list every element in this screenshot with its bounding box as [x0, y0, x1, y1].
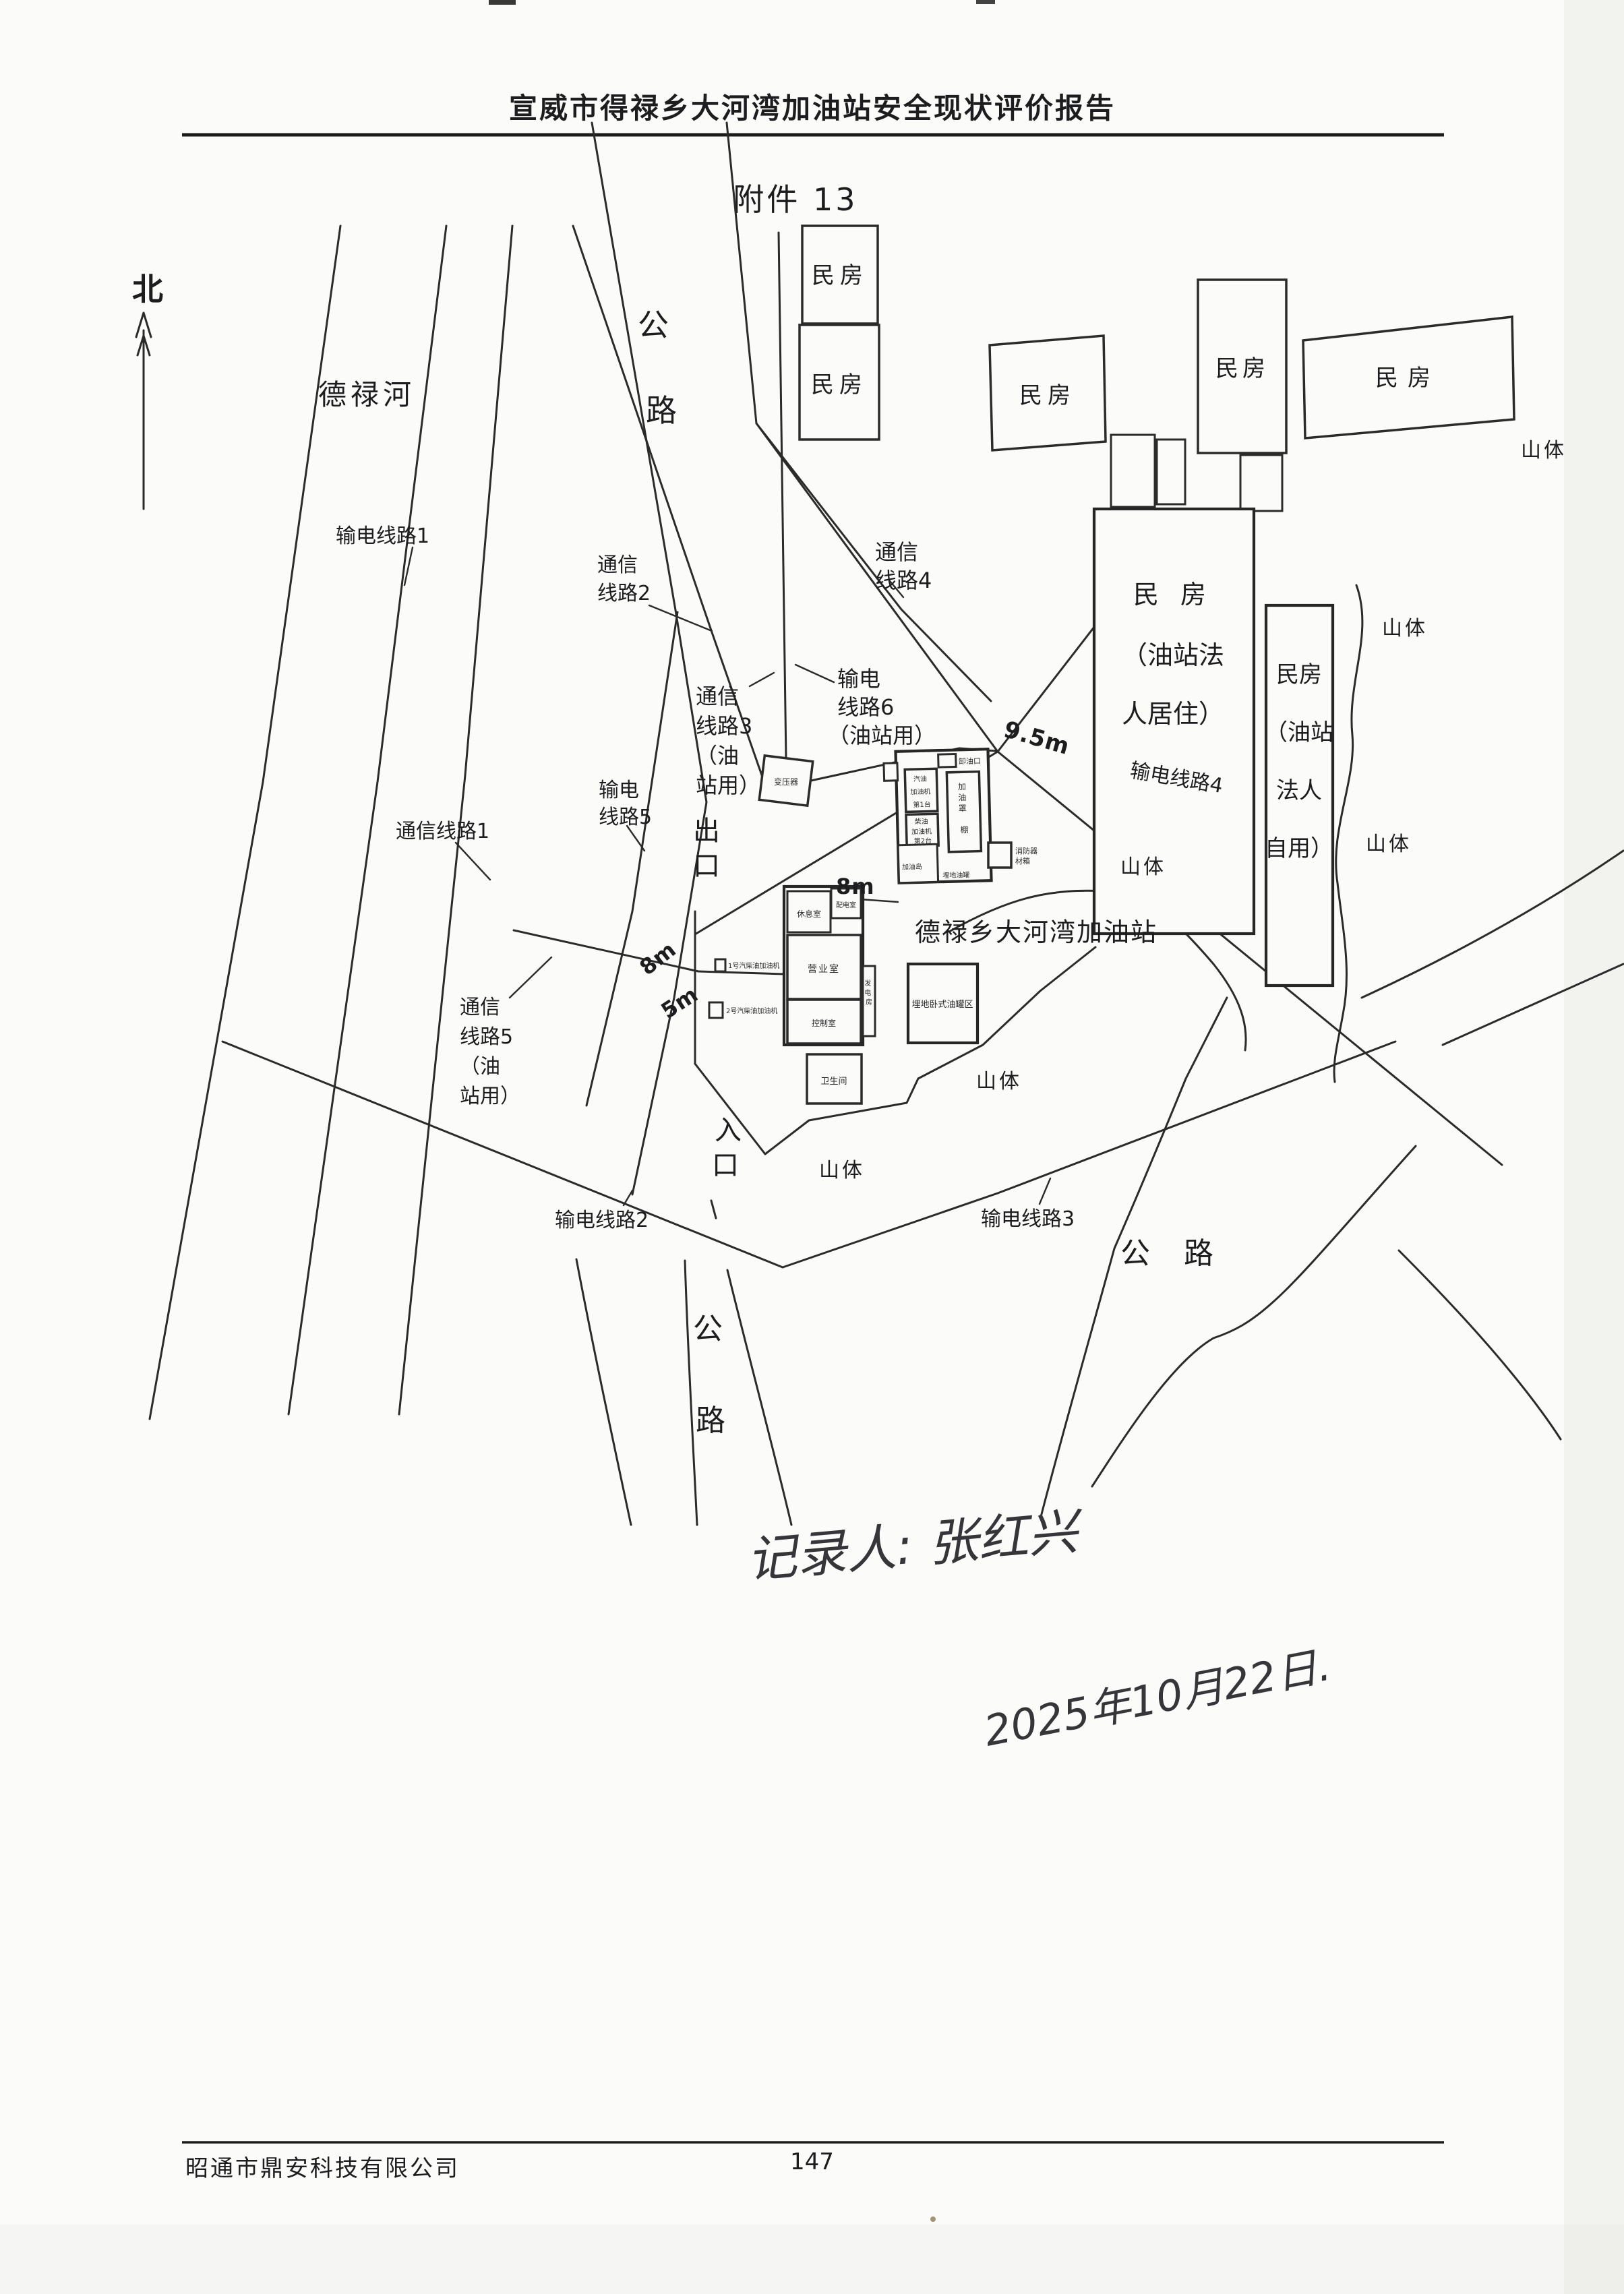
north-compass: 北	[132, 271, 163, 509]
rest-room-label: 休息室	[797, 909, 821, 919]
leader-telecom5	[510, 957, 551, 998]
canopy-island-vertical-label: 加 油 罩 棚	[958, 782, 970, 835]
handwritten-date: 2025年10月22日.	[980, 1641, 1335, 1756]
tank-area-label: 埋地卧式油罐区	[911, 1000, 973, 1010]
houses-group: 民房 民房 民房 民房 民房	[800, 226, 1514, 511]
fire-equipment-label: 消防器 材箱	[1015, 846, 1040, 866]
house-1-label: 民房	[812, 262, 868, 289]
small-outbuilding-1	[1111, 435, 1155, 507]
road-top-label: 公 路	[638, 307, 679, 429]
transformer-label: 变压器	[774, 777, 798, 787]
power-line-6-label: 输电 线路6 （油站用）	[828, 666, 936, 748]
telecom-line-1-label: 通信线路1	[396, 820, 489, 843]
dispenser-2-box	[709, 1002, 723, 1018]
road-top-west-edge	[592, 123, 706, 1195]
road-bottom-edge-2	[685, 1261, 697, 1525]
report-title: 宣威市得禄乡大河湾加油站安全现状评价报告	[509, 92, 1116, 125]
owner-private-line2: （油站	[1265, 719, 1333, 746]
dispenser-row-line	[698, 971, 784, 974]
owner-residence-line1: 民 房	[1133, 580, 1213, 609]
small-outbuilding-2	[1157, 440, 1185, 504]
handwritten-notes: 记录人: 张红兴 2025年10月22日.	[744, 1502, 1334, 1755]
footer-company: 昭通市鼎安科技有限公司	[185, 2155, 460, 2182]
telecom-line-4-path	[756, 423, 991, 701]
unloading-point-label: 卸油口	[959, 756, 981, 766]
house-2-label: 民房	[811, 371, 868, 398]
telecom-line-5-label: 通信 线路5 （油 站用）	[460, 996, 520, 1108]
house-5-label: 民房	[1375, 365, 1440, 392]
leader-telecom3	[750, 673, 774, 686]
island-label: 加油岛	[902, 862, 922, 872]
road-curve-bottom-right	[1399, 1250, 1561, 1439]
mountain-label-5: 山体	[819, 1159, 865, 1182]
scanned-report-page: 宣威市得禄乡大河湾加油站安全现状评价报告 附件 13 北	[0, 0, 1624, 2294]
toilet-label: 卫生间	[820, 1077, 847, 1087]
service-building-group: 休息室 配电室 营业室 控制室 发 电 房 卫生间	[784, 886, 875, 1104]
road-bottom-edge-3	[727, 1270, 791, 1525]
mountain-label-4: 山体	[976, 1070, 1022, 1093]
road-right-east-edge	[1092, 1146, 1416, 1486]
power-line-6-path	[779, 233, 786, 759]
scan-mark-top-2	[976, 0, 995, 4]
mountain-label-2: 山体	[1366, 833, 1412, 856]
owner-residence-line2: （油站法	[1122, 640, 1224, 670]
dispenser-1-label: 1号汽柴油加油机	[728, 961, 779, 970]
scan-bottom-shade	[0, 2225, 1624, 2294]
canopy-group: 卸油口 加 油 罩 棚 汽油 加油机 第1台 柴油 加油机 第2台 加油岛	[883, 749, 991, 883]
scan-mark-top-1	[489, 0, 516, 5]
road-top-east-edge	[727, 123, 756, 423]
dispenser-1-box	[715, 959, 725, 971]
attachment-heading: 附件 13	[733, 181, 858, 218]
owner-private-line1: 民房	[1276, 661, 1322, 688]
leader-power2	[624, 1190, 632, 1205]
buried-tank-label: 埋地油罐	[942, 870, 969, 880]
river-bank-west-line	[150, 226, 340, 1419]
control-room-label: 控制室	[812, 1018, 836, 1028]
fire-equipment-box	[988, 843, 1011, 868]
house-3-label: 民房	[1019, 382, 1076, 409]
river-label: 德禄河	[318, 378, 415, 411]
leader-telecom1	[456, 843, 490, 880]
mountain-label-3: 山体	[1120, 855, 1166, 879]
owner-private-line4: 自用）	[1265, 835, 1333, 862]
road-right-label: 公 路	[1120, 1236, 1226, 1271]
dim-8m-boundary-label: 8m	[635, 936, 682, 980]
station-name-label: 德禄乡大河湾加油站	[915, 917, 1157, 947]
mountain-label-1: 山体	[1382, 617, 1428, 640]
page-footer: 昭通市鼎安科技有限公司 147	[182, 2142, 1444, 2182]
power-line-5-label: 输电 线路5	[599, 779, 652, 829]
road-bottom-edge-1	[576, 1259, 631, 1525]
scan-edge-shade	[1564, 0, 1624, 2294]
handwritten-recorder: 记录人: 张红兴	[744, 1502, 1087, 1589]
generator-room-label: 发 电 房	[864, 979, 873, 1006]
owner-houses-group: 民 房 （油站法 人居住） 民房 （油站 法人 自用）	[1094, 509, 1333, 986]
mountain-edge-right-wavy	[1334, 585, 1362, 1082]
scan-speck	[930, 2216, 936, 2222]
business-room-label: 营业室	[808, 963, 840, 975]
north-label: 北	[132, 271, 163, 307]
telecom-line-4-label: 通信 线路4	[875, 539, 932, 593]
distribution-room-label: 配电室	[836, 901, 856, 909]
footer-page-number: 147	[790, 2148, 834, 2175]
leader-telecom2	[649, 605, 712, 631]
leader-power6	[795, 665, 834, 682]
owner-residence-line3: 人居住）	[1122, 699, 1224, 729]
owner-private-line3: 法人	[1276, 777, 1322, 804]
leader-power3	[1040, 1178, 1050, 1204]
power-line-5-path	[587, 612, 678, 1106]
road-bottom-label: 公 路	[693, 1312, 732, 1438]
entrance-gate-label: 入 口	[712, 1115, 750, 1181]
dim-9p5m-label: 9.5m	[1001, 716, 1073, 760]
dispenser-2-label: 2号汽柴油加油机	[726, 1006, 777, 1015]
canopy-west-notch	[884, 763, 898, 781]
unloading-point-box	[938, 754, 956, 768]
entrance-tick-mark	[711, 1201, 716, 1218]
power-line-2-label: 输电线路2	[555, 1209, 649, 1232]
leader-power5	[627, 826, 644, 851]
site-plan-drawing: 宣威市得禄乡大河湾加油站安全现状评价报告 附件 13 北	[0, 0, 1624, 2294]
mountain-label-0: 山体	[1521, 439, 1567, 462]
small-outbuilding-3	[1240, 455, 1282, 511]
page-header: 宣威市得禄乡大河湾加油站安全现状评价报告 附件 13	[182, 92, 1444, 218]
telecom-line-2-label: 通信 线路2	[597, 553, 651, 605]
house-4-label: 民房	[1215, 355, 1269, 382]
power-line-3-label: 输电线路3	[981, 1207, 1075, 1231]
power-line-1-label: 输电线路1	[336, 524, 429, 548]
dim-8m-canopy-label: 8m	[836, 874, 875, 899]
